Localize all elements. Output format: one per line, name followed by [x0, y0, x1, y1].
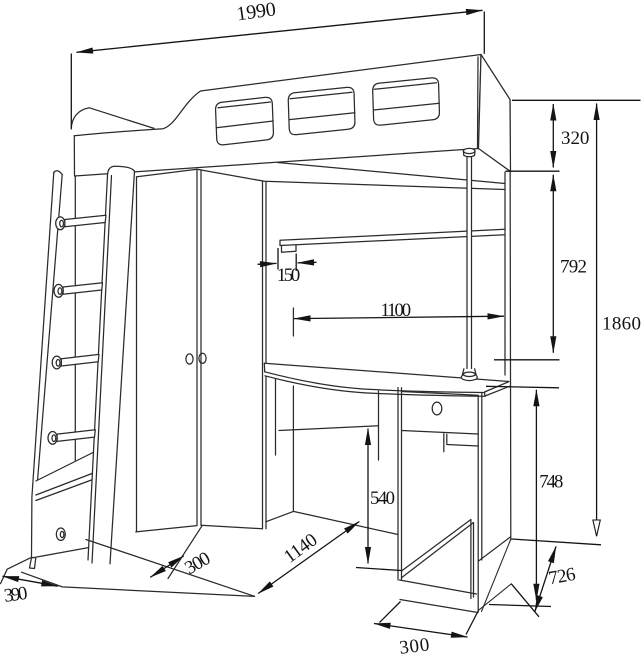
svg-text:1140: 1140	[280, 529, 321, 567]
svg-text:150: 150	[277, 265, 301, 286]
svg-text:320: 320	[561, 128, 589, 149]
svg-text:300: 300	[181, 548, 214, 579]
svg-text:300: 300	[398, 634, 430, 658]
svg-text:1100: 1100	[380, 300, 411, 321]
svg-text:540: 540	[370, 488, 395, 509]
svg-text:792: 792	[560, 257, 587, 278]
svg-text:726: 726	[547, 564, 577, 589]
svg-text:748: 748	[539, 471, 563, 492]
svg-text:1990: 1990	[235, 0, 277, 26]
svg-text:390: 390	[3, 583, 29, 607]
svg-text:1860: 1860	[602, 314, 641, 335]
